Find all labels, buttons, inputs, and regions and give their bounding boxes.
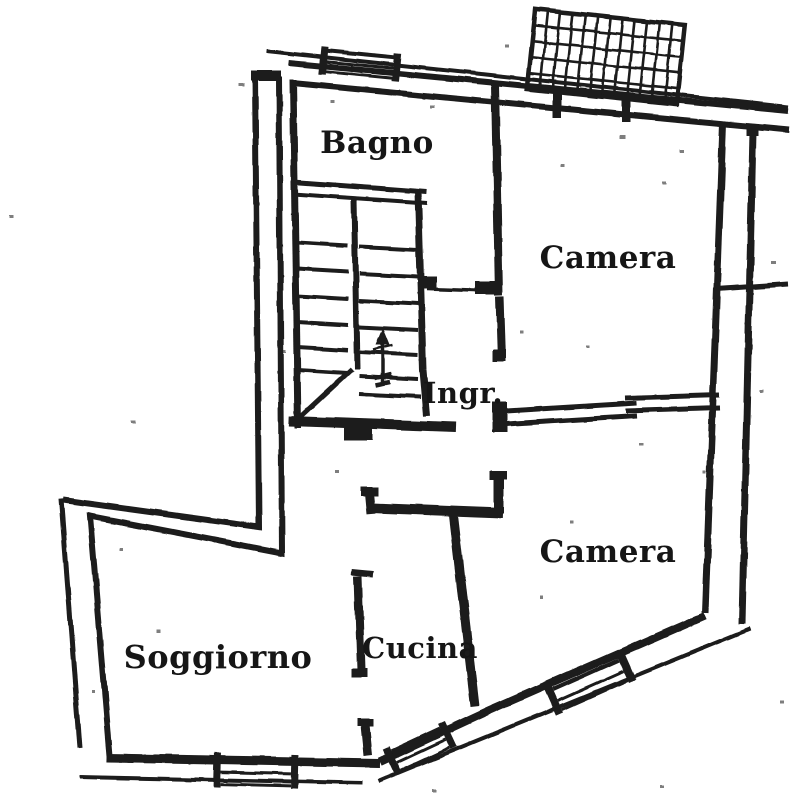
- door-jamb: [422, 276, 437, 289]
- floor-plan-drawing: Bagno Camera Ingr. Camera Cucina Soggior…: [0, 0, 791, 800]
- room-labels: Bagno Camera Ingr. Camera Cucina Soggior…: [124, 125, 677, 676]
- room-label-cucina: Cucina: [362, 631, 478, 665]
- floor-plan-page: Bagno Camera Ingr. Camera Cucina Soggior…: [0, 0, 791, 800]
- window-diagonal-1: [383, 721, 456, 775]
- terrace-grate: [527, 9, 685, 104]
- stair-divider: [354, 198, 357, 369]
- room-label-soggiorno: Soggiorno: [124, 638, 313, 676]
- bagno-east-wall: [475, 84, 506, 362]
- room-label-bagno: Bagno: [320, 125, 434, 161]
- room-label-ingresso: Ingr.: [423, 376, 503, 410]
- bagno-west-wall: [293, 80, 298, 428]
- ingresso-camera-wall: [492, 395, 720, 432]
- camera-sud-west-stub: [490, 471, 507, 513]
- room-label-camera-nord: Camera: [540, 240, 677, 276]
- entrance-door-leaf: [427, 289, 489, 291]
- stair-break-line: [298, 369, 352, 419]
- window-south: [214, 753, 299, 789]
- east-wall: [705, 123, 788, 624]
- room-label-camera-sud: Camera: [540, 534, 677, 570]
